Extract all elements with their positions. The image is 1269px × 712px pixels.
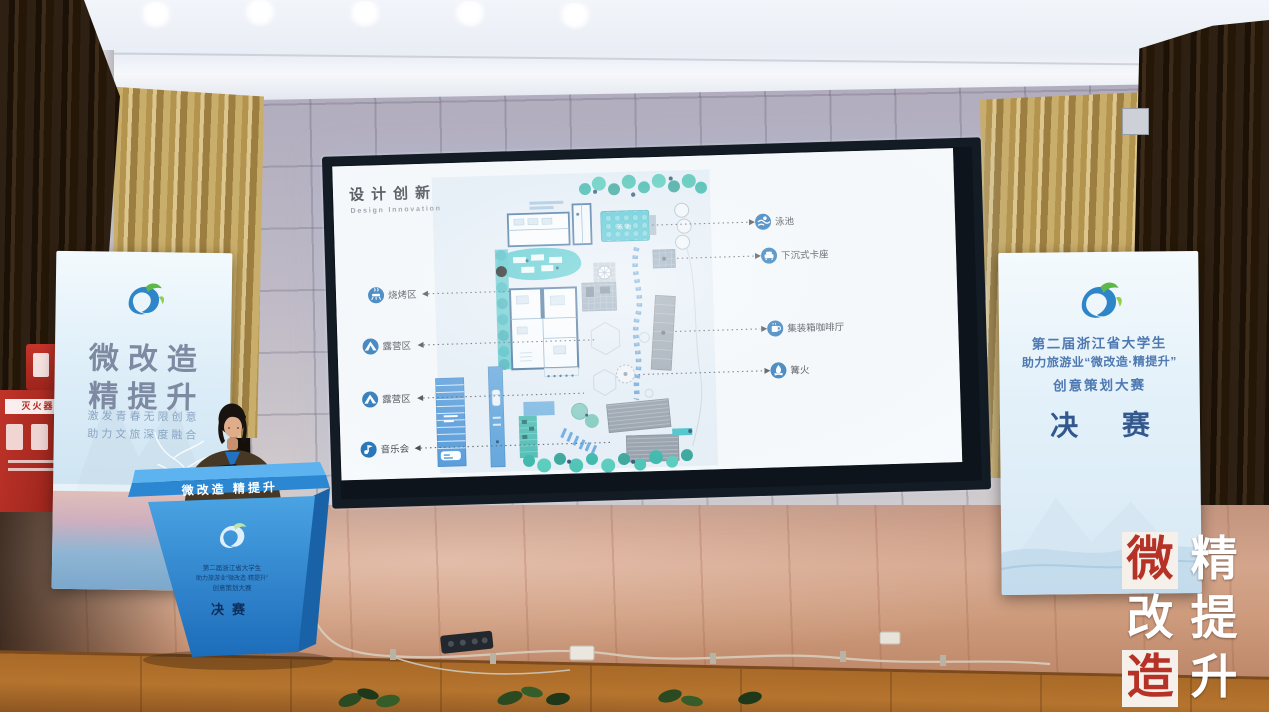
ceiling-light xyxy=(242,0,278,26)
presentation-slide: 设计创新 Design Innovation xyxy=(332,148,962,480)
watermark-left-column: 微 改 造 xyxy=(1122,532,1178,712)
stage-cables xyxy=(240,592,1060,712)
speaker-face xyxy=(224,417,242,438)
event-photo-scene: 灭火器 xyxy=(0,0,1269,712)
led-screen: 设计创新 Design Innovation xyxy=(322,137,991,508)
podium-line3: 创意策划大赛 xyxy=(213,583,253,592)
wall-speaker-box xyxy=(1122,108,1149,135)
watermark-right-column: 精 提 升 xyxy=(1186,532,1242,712)
screen-glow xyxy=(332,148,962,480)
watermark-char: 升 xyxy=(1186,650,1242,707)
podium-final-label: 决赛 xyxy=(211,602,253,617)
fire-sign-pictogram xyxy=(31,424,48,450)
banner-line2: 助力旅游业“微改造·精提升” xyxy=(999,352,1199,371)
power-adapter xyxy=(570,646,594,660)
banner-final-label: 决 赛 xyxy=(1000,403,1200,445)
watermark-logo: 微 改 造 精 提 升 xyxy=(1122,532,1268,712)
ceiling-light xyxy=(452,1,488,27)
watermark-char: 微 xyxy=(1122,532,1178,589)
power-strip xyxy=(440,631,494,654)
fire-sign-textrow xyxy=(8,468,54,471)
watermark-char: 造 xyxy=(1122,650,1178,707)
fire-sign-pictogram xyxy=(6,424,23,450)
podium-line2: 助力旅游业“微改造·精提升” xyxy=(196,574,268,582)
watermark-char: 改 xyxy=(1122,591,1178,648)
event-logo-icon xyxy=(1082,282,1122,318)
power-adapter xyxy=(880,632,900,644)
banner-line3: 创意策划大赛 xyxy=(999,373,1199,395)
podium-and-speaker: 微改造 精提升 第二届浙江省大学生 助力旅游业“微改造·精提升” 创意策划大赛 … xyxy=(108,372,353,677)
event-logo-icon xyxy=(128,283,164,315)
ceiling-light xyxy=(138,2,174,28)
ceiling-light xyxy=(347,1,383,27)
podium: 微改造 精提升 第二届浙江省大学生 助力旅游业“微改造·精提升” 创意策划大赛 … xyxy=(128,462,330,657)
slide-graphic: 设计创新 Design Innovation xyxy=(332,148,962,480)
podium-line1: 第二届浙江省大学生 xyxy=(203,563,262,572)
banner-line1: 第二届浙江省大学生 xyxy=(999,331,1199,353)
fire-sign-pictogram xyxy=(33,353,49,377)
watermark-char: 提 xyxy=(1186,591,1242,648)
watermark-char: 精 xyxy=(1186,532,1242,589)
ceiling-light xyxy=(557,3,593,29)
